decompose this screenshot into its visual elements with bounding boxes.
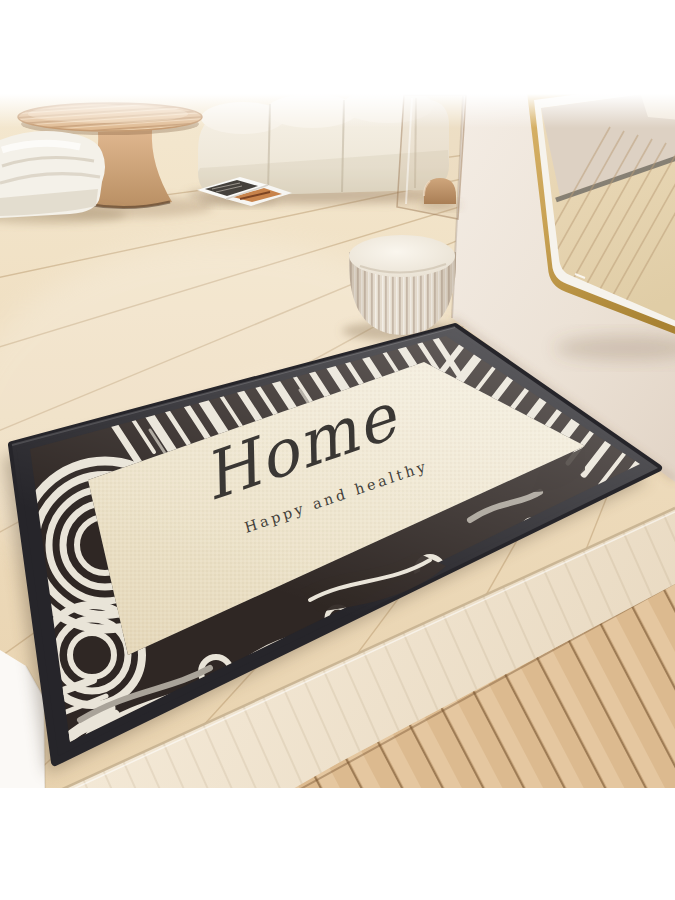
pouf [342, 235, 462, 341]
entryway-scene: Home Happy and healthy [0, 0, 675, 900]
pouf-top [349, 235, 455, 277]
bottom-white-band [0, 788, 675, 900]
scene-canvas: Home Happy and healthy [0, 0, 675, 900]
top-fade [0, 94, 675, 128]
top-white-band [0, 0, 675, 94]
